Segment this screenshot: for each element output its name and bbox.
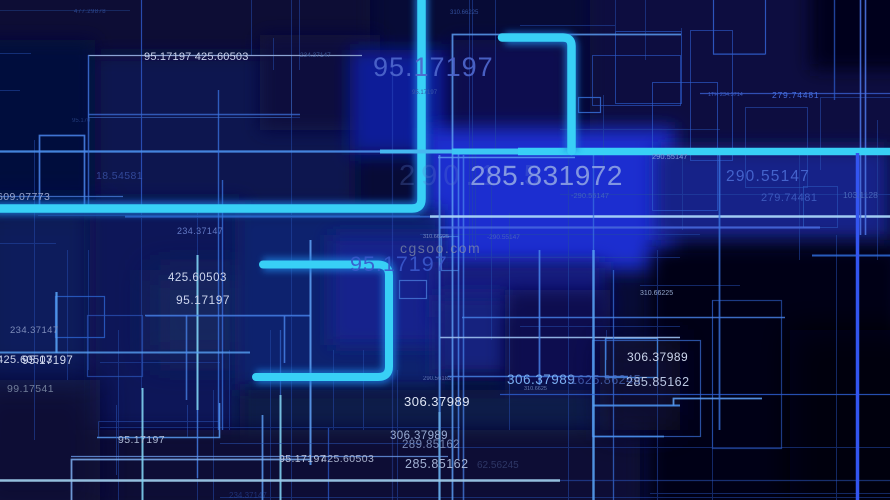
svg-text:-290.55147: -290.55147 [487, 234, 520, 241]
svg-text:306.37989: 306.37989 [507, 372, 575, 387]
svg-text:95.17197 425.60503: 95.17197 425.60503 [144, 51, 249, 63]
svg-text:62.56245: 62.56245 [477, 460, 519, 471]
svg-text:95.17197: 95.17197 [373, 52, 494, 82]
svg-text:-290.55147: -290.55147 [571, 191, 609, 200]
svg-text:18.54581: 18.54581 [96, 170, 143, 182]
svg-text:285.831972: 285.831972 [470, 160, 623, 191]
svg-text:279.74481: 279.74481 [761, 192, 818, 204]
svg-text:1TH 234.3714: 1TH 234.3714 [708, 92, 743, 98]
svg-text:425.60503: 425.60503 [168, 272, 227, 284]
svg-text:306.37989: 306.37989 [404, 394, 470, 409]
svg-text:306.37989: 306.37989 [627, 350, 688, 364]
svg-text:234.37147: 234.37147 [300, 52, 331, 59]
svg-text:95.170: 95.170 [72, 118, 91, 124]
svg-text:95.17197: 95.17197 [176, 293, 230, 307]
svg-text:99.17541: 99.17541 [7, 383, 54, 395]
svg-text:477.29878: 477.29878 [74, 9, 106, 15]
svg-text:234.37147: 234.37147 [10, 325, 59, 336]
svg-text:310.6625: 310.6625 [524, 386, 547, 392]
svg-text:1625.86245: 1625.86245 [570, 373, 641, 387]
svg-text:103.1128: 103.1128 [843, 190, 878, 200]
svg-text:95.17197: 95.17197 [22, 355, 73, 367]
svg-text:95.17197: 95.17197 [412, 90, 438, 96]
svg-text:310.66225: 310.66225 [423, 234, 449, 240]
svg-text:95.17197: 95.17197 [118, 434, 165, 446]
svg-text:310.66225: 310.66225 [640, 290, 673, 297]
svg-text:290.55147: 290.55147 [652, 152, 687, 161]
svg-text:234.37147: 234.37147 [229, 491, 267, 500]
svg-text:289.85162: 289.85162 [402, 439, 460, 451]
svg-text:95.17197: 95.17197 [279, 453, 326, 465]
svg-text:290.55147: 290.55147 [726, 168, 810, 185]
svg-text:234.37147: 234.37147 [177, 226, 223, 236]
svg-text:609.07773: 609.07773 [0, 191, 50, 203]
svg-text:290.56182: 290.56182 [423, 376, 452, 382]
svg-text:95.17197: 95.17197 [350, 252, 448, 276]
svg-text:279.74481: 279.74481 [772, 90, 819, 100]
svg-text:425.60503: 425.60503 [321, 453, 374, 465]
svg-text:285.85162: 285.85162 [405, 457, 469, 471]
svg-text:310.66225: 310.66225 [450, 10, 479, 16]
